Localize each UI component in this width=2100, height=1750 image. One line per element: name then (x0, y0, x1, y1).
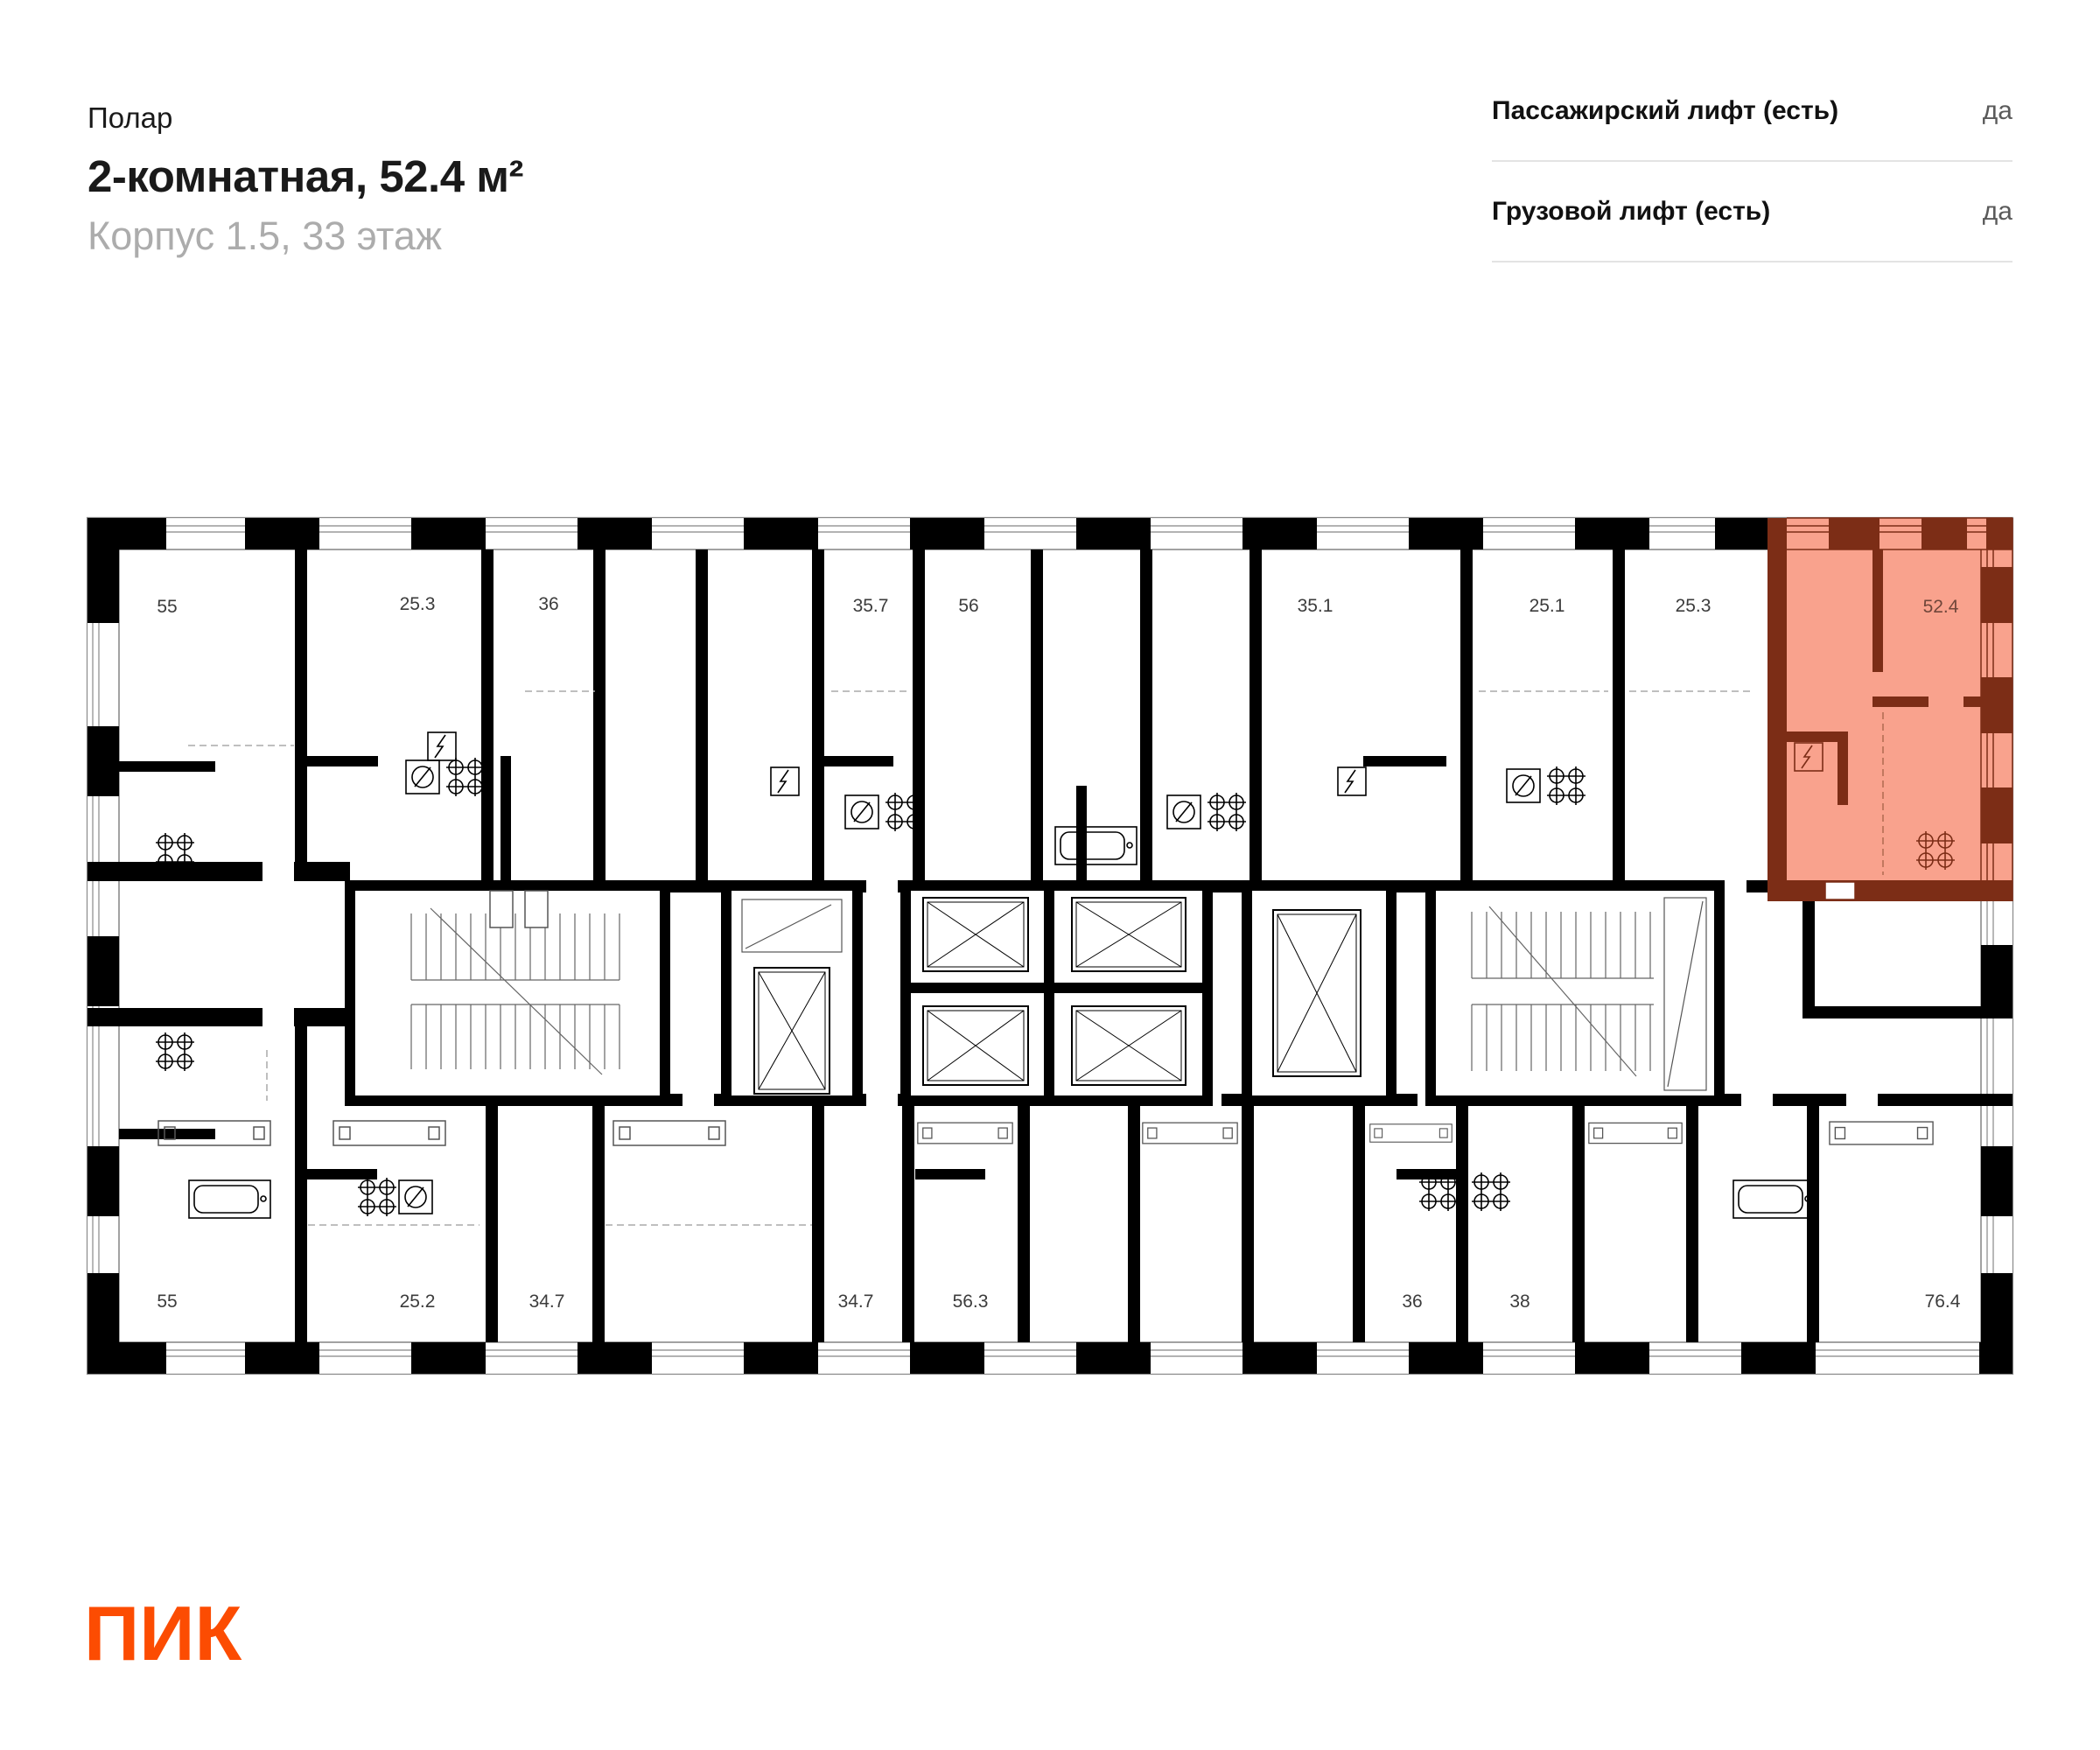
unit-area-label: 25.1 (1529, 596, 1565, 616)
unit-area-label: 35.7 (853, 596, 889, 616)
unit-area-label: 55 (157, 1291, 177, 1312)
unit-area-label: 25.3 (400, 594, 436, 614)
pik-logo: ПИК (84, 1589, 241, 1678)
unit-area-label: 35.1 (1298, 596, 1333, 616)
unit-area-label: 34.7 (838, 1291, 874, 1312)
unit-area-label: 76.4 (1925, 1291, 1961, 1312)
unit-area-label: 55 (157, 597, 177, 617)
building-core (350, 885, 1719, 1101)
unit-area-label: 36 (1402, 1291, 1422, 1312)
unit-area-label: 38 (1509, 1291, 1529, 1312)
unit-area-label: 25.2 (400, 1291, 436, 1312)
unit-area-label: 36 (538, 594, 558, 614)
unit-area-label: 34.7 (529, 1291, 565, 1312)
unit-area-label: 56 (958, 596, 978, 616)
highlighted-unit-area-label: 52.4 (1923, 597, 1959, 617)
highlighted-unit[interactable] (1767, 518, 2012, 901)
unit-area-label: 25.3 (1676, 596, 1711, 616)
floor-plan-canvas: 5525.33635.75635.125.125.352.45525.234.7… (0, 0, 2100, 1750)
unit-area-label: 56.3 (953, 1291, 989, 1312)
